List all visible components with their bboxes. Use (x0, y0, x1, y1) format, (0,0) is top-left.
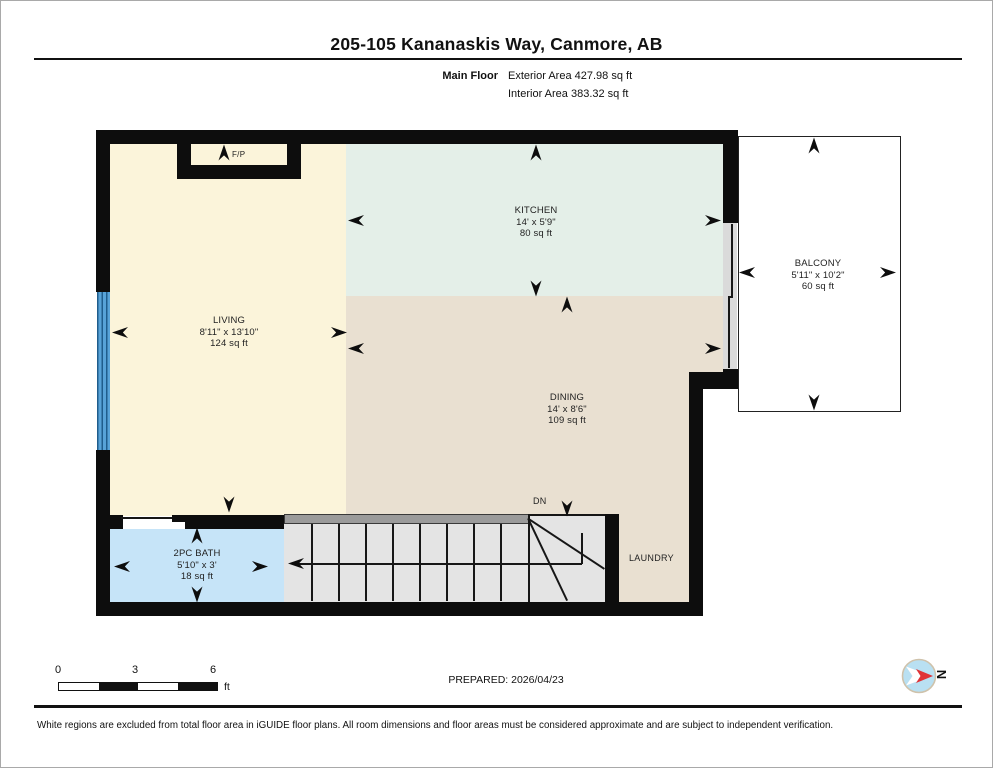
compass-icon (900, 657, 938, 695)
scale-unit-label: ft (224, 681, 230, 693)
scale-tick-0: 0 (47, 664, 69, 676)
room-dims: 5'11" x 10'2" (748, 270, 888, 282)
room-label-living: LIVING 8'11" x 13'10" 124 sq ft (159, 315, 299, 350)
room-name: DINING (497, 392, 637, 404)
floorplan-canvas: LIVING 8'11" x 13'10" 124 sq ft KITCHEN … (1, 1, 993, 768)
wall (689, 372, 738, 389)
room-dims: 14' x 8'6" (497, 404, 637, 416)
room-name: KITCHEN (466, 205, 606, 217)
room-name: LIVING (159, 315, 299, 327)
window-living (97, 292, 110, 450)
room-label-dining: DINING 14' x 8'6" 109 sq ft (497, 392, 637, 427)
room-area: 60 sq ft (748, 281, 888, 293)
scale-tick-6: 6 (202, 664, 224, 676)
scale-bar (58, 682, 218, 691)
north-label: N (934, 670, 949, 679)
stairs-down-label: DN (533, 496, 547, 506)
stair-winder-divider (528, 514, 530, 602)
disclaimer-text: White regions are excluded from total fl… (37, 720, 967, 731)
staircase (284, 514, 605, 602)
room-dims: 5'10" x 3' (127, 560, 267, 572)
scale-bar-segment (99, 683, 139, 690)
wall (185, 515, 284, 529)
wall (96, 130, 738, 144)
room-name: BALCONY (748, 258, 888, 270)
stair-direction-line (581, 533, 583, 564)
room-area: 109 sq ft (497, 415, 637, 427)
fireplace-wall (177, 165, 301, 179)
sliding-door-joint (728, 296, 733, 298)
sliding-door-panel (731, 224, 733, 297)
fireplace-label: F/P (232, 150, 245, 159)
wall (605, 514, 619, 604)
wall (96, 602, 703, 616)
room-label-bath: 2PC BATH 5'10" x 3' 18 sq ft (127, 548, 267, 583)
wall (723, 130, 738, 223)
room-area: 80 sq ft (466, 228, 606, 240)
room-label-balcony: BALCONY 5'11" x 10'2" 60 sq ft (748, 258, 888, 293)
wall (96, 515, 123, 529)
scale-tick-3: 3 (124, 664, 146, 676)
bath-door-jamb (172, 515, 185, 522)
room-label-kitchen: KITCHEN 14' x 5'9" 80 sq ft (466, 205, 606, 240)
room-area: 18 sq ft (127, 571, 267, 583)
scale-bar-segment (178, 683, 218, 690)
sliding-door-panel (728, 297, 730, 368)
room-dims: 14' x 5'9" (466, 217, 606, 229)
stair-direction-line (297, 563, 582, 565)
footer-divider (34, 705, 962, 708)
floorplan-page: 205-105 Kananaskis Way, Canmore, AB Main… (0, 0, 993, 768)
room-name: 2PC BATH (127, 548, 267, 560)
laundry-label: LAUNDRY (629, 553, 674, 563)
room-dims: 8'11" x 13'10" (159, 327, 299, 339)
wall (96, 450, 110, 615)
wall (689, 389, 703, 616)
prepared-date-label: PREPARED: 2026/04/23 (401, 674, 611, 686)
stair-landing-edge (284, 514, 529, 524)
wall (96, 130, 110, 292)
room-area: 124 sq ft (159, 338, 299, 350)
